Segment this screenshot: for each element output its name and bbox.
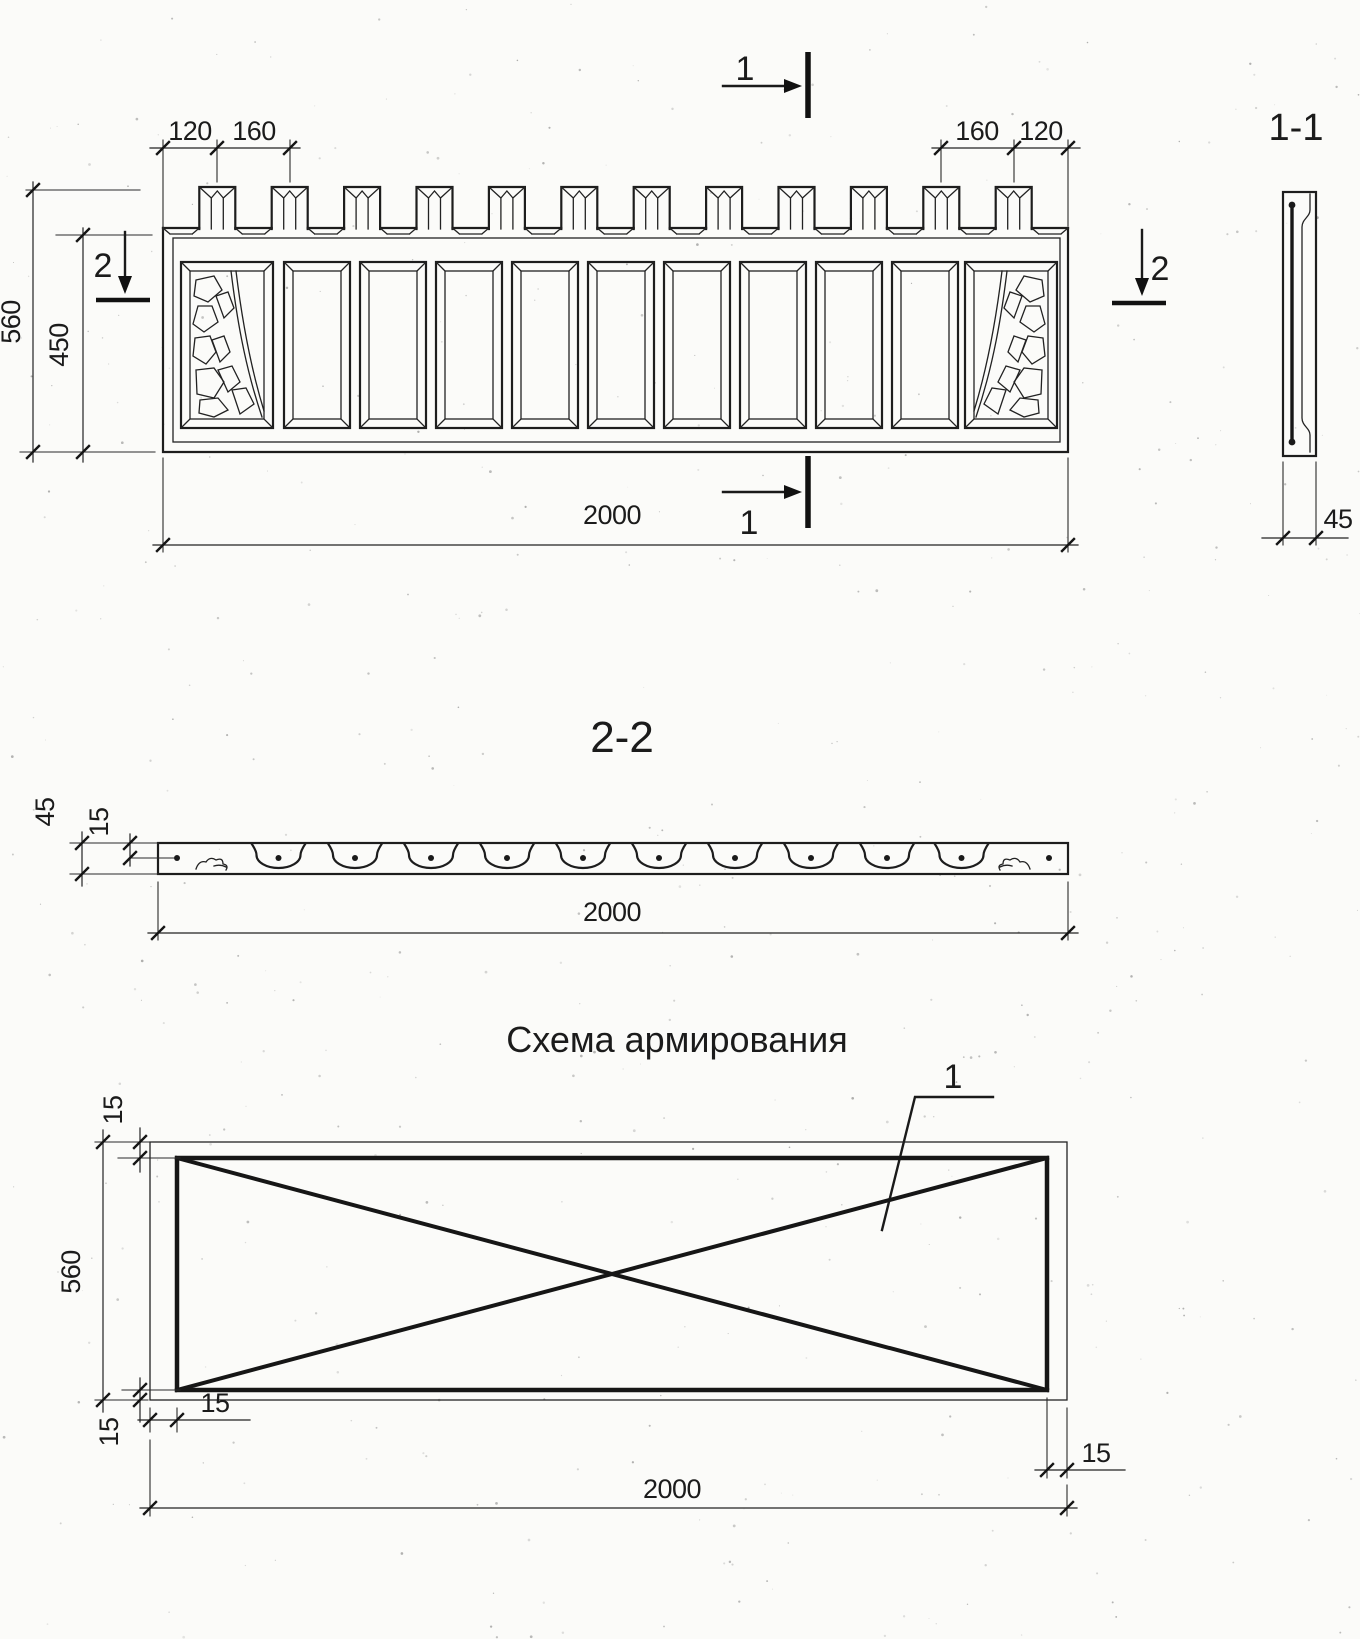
scheme-title: Схема армирования: [506, 1019, 848, 1060]
drawing-sheet: 120 160 160 120 560 450 2000 1 1: [0, 0, 1360, 1639]
dim-label: 2000: [643, 1474, 701, 1504]
dim-label: 15: [84, 807, 114, 836]
section-title: 2-2: [590, 713, 654, 762]
elevation-view: 120 160 160 120 560 450 2000 1 1: [0, 50, 1169, 552]
section-mark-1-bottom: 1: [723, 456, 808, 542]
section-mark-1-top: 1: [723, 50, 808, 118]
dim-label: 2000: [583, 500, 641, 530]
dim-label: 120: [1019, 116, 1063, 146]
item-number: 1: [944, 1058, 963, 1096]
item-leader: 1: [882, 1058, 993, 1230]
stone-mark-right: [999, 858, 1030, 870]
dim-label: 450: [44, 323, 74, 367]
dim-label: 45: [30, 797, 60, 826]
dim-label: 560: [0, 300, 26, 344]
dim-label: 15: [98, 1095, 128, 1124]
section-1-1-view: 1-1 45: [1262, 107, 1353, 545]
dim-label: 160: [955, 116, 999, 146]
panel-top-edge: [163, 228, 1068, 234]
dimension-ticks: [27, 142, 1322, 1514]
dim-label: 15: [1081, 1438, 1110, 1468]
section-2-2-view: 2-2 45 15 2000: [30, 713, 1078, 940]
section-number: 1: [740, 504, 759, 542]
rib-cross-sections: [252, 844, 989, 869]
section-number: 2: [1151, 250, 1170, 288]
reinforcement-scheme-view: Схема армирования 1 15 560 15 15 15 2000: [56, 1019, 1125, 1516]
dim-label: 560: [56, 1250, 86, 1294]
dim-label: 160: [232, 116, 276, 146]
section-number: 1: [736, 50, 755, 88]
dim-label: 45: [1323, 504, 1352, 534]
section-number: 2: [94, 247, 113, 285]
stone-texture: [193, 271, 264, 417]
dim-label: 15: [94, 1417, 124, 1446]
section-mark-2-right: 2: [1112, 230, 1169, 303]
crenellation-merlons: [199, 187, 1031, 229]
dim-label: 2000: [583, 897, 641, 927]
framed-openings: [181, 262, 1057, 428]
dim-label: 15: [200, 1388, 229, 1418]
section-mark-2-left: 2: [94, 232, 150, 300]
stone-texture-right: [974, 271, 1045, 417]
technical-drawing-svg: 120 160 160 120 560 450 2000 1 1: [0, 0, 1360, 1639]
section-title: 1-1: [1269, 107, 1324, 149]
dim-label: 120: [168, 116, 212, 146]
stone-mark: [196, 858, 227, 870]
